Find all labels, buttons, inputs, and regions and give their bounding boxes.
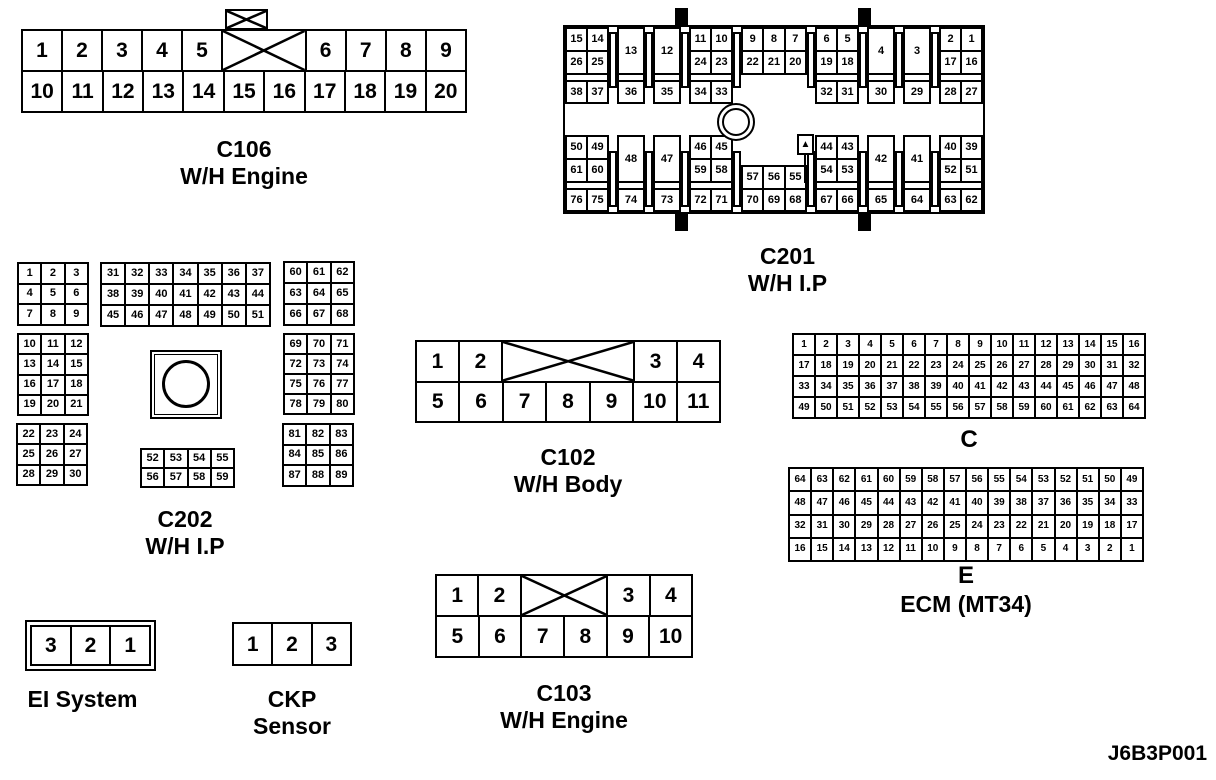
pin-cell: 86 xyxy=(331,446,352,465)
ecm-c-label: C xyxy=(792,426,1146,453)
figure-code: J6B3P001 xyxy=(1000,742,1207,766)
pin-cell: 84 xyxy=(284,446,305,465)
c106-title: C106 xyxy=(21,136,467,163)
c201-index-marker-stem xyxy=(804,155,806,183)
pin-cell: 61 xyxy=(308,263,329,282)
c202-grid-7: 5253545556575859 xyxy=(140,448,235,488)
pin-cell: 22 xyxy=(18,425,39,443)
pin-cell: 7 xyxy=(347,31,385,70)
c106-row1-right-cells: 6789 xyxy=(307,31,465,70)
pin-cell: 28 xyxy=(1036,356,1056,375)
c106-row1-left-cells: 12345 xyxy=(23,31,221,70)
c201-pod: 65 1918 3231 xyxy=(815,27,859,104)
pin-cell: 7 xyxy=(786,29,805,50)
pin-cell: 15 xyxy=(812,539,832,560)
pin-cell: 59 xyxy=(212,469,233,486)
c201-bolt-hole-inner-icon xyxy=(722,108,750,136)
pin-cell: 56 xyxy=(967,469,987,490)
pod-row: 65 xyxy=(817,29,857,50)
pin-cell: 11 xyxy=(678,383,719,422)
pin-cell: 50 xyxy=(567,137,586,158)
pin-cell: 22 xyxy=(743,52,762,73)
pin-cell: 67 xyxy=(308,305,329,324)
pin-cell: 40 xyxy=(948,377,968,396)
pin-cell: 56 xyxy=(948,398,968,417)
pin-cell: 72 xyxy=(691,190,710,210)
pin-cell: 10 xyxy=(992,335,1012,354)
pod-gap xyxy=(817,75,857,80)
ckp-sensor-subtitle: Sensor xyxy=(232,713,352,740)
pin-cell: 13 xyxy=(144,72,182,111)
pin-cell: 12 xyxy=(655,29,679,73)
pin-cell: 41 xyxy=(905,137,929,181)
pin-cell: 51 xyxy=(962,160,981,181)
pin-cell: 53 xyxy=(882,398,902,417)
c102-row2-cells: 567891011 xyxy=(417,383,719,422)
pin-cell: 3 xyxy=(1078,539,1098,560)
pin-cell: 31 xyxy=(812,516,832,537)
pin-cell: 57 xyxy=(165,469,186,486)
pin-cell: 53 xyxy=(165,450,186,467)
pin-cell: 8 xyxy=(565,617,606,656)
pin-cell: 28 xyxy=(879,516,899,537)
ei-system-label: EI System xyxy=(0,686,165,713)
ecm-connector-c-grid: 1234567891011121314151617181920212223242… xyxy=(792,333,1146,419)
pin-cell: 37 xyxy=(247,264,269,283)
c102-title: C102 xyxy=(415,444,721,471)
pin-cell: 17 xyxy=(941,52,960,73)
pin-cell: 42 xyxy=(199,285,221,304)
pin-cell: 39 xyxy=(126,285,148,304)
pin-cell: 26 xyxy=(992,356,1012,375)
pin-cell: 59 xyxy=(901,469,921,490)
pin-cell: 60 xyxy=(588,160,607,181)
ei-system-title: EI System xyxy=(0,686,165,713)
pin-cell: 45 xyxy=(1058,377,1078,396)
pin-cell: 67 xyxy=(817,190,836,210)
pin-cell: 8 xyxy=(387,31,425,70)
pin-cell: 55 xyxy=(786,167,805,188)
pin-cell: 37 xyxy=(588,82,607,102)
c202-grid-3: 606162636465666768 xyxy=(283,261,355,326)
pin-cell: 36 xyxy=(619,82,643,102)
pod-row: 3433 xyxy=(691,82,731,102)
pin-cell: 36 xyxy=(1056,492,1076,513)
pin-cell: 44 xyxy=(247,285,269,304)
c106-row1: 12345 6789 xyxy=(23,31,465,70)
c201-rib xyxy=(859,32,867,88)
pin-cell: 2 xyxy=(273,624,310,664)
c202-title: C202 xyxy=(100,506,270,533)
pin-cell: 46 xyxy=(834,492,854,513)
pin-cell: 47 xyxy=(150,306,172,325)
c201-pod: 575655 706968 xyxy=(741,165,807,212)
pod-gap xyxy=(905,75,929,80)
pin-cell: 16 xyxy=(1124,335,1144,354)
c202-label: C202 W/H I.P xyxy=(100,506,270,560)
pin-cell: 12 xyxy=(879,539,899,560)
pin-cell: 9 xyxy=(608,617,649,656)
c201-pod: 12 35 xyxy=(653,27,681,104)
pin-cell: 40 xyxy=(941,137,960,158)
c201-rib xyxy=(895,32,903,88)
pod-gap xyxy=(691,183,731,188)
c201-rib xyxy=(609,32,617,88)
pin-cell: 8 xyxy=(967,539,987,560)
pin-cell: 10 xyxy=(712,29,731,50)
pin-cell: 57 xyxy=(743,167,762,188)
pin-cell: 43 xyxy=(901,492,921,513)
pin-cell: 14 xyxy=(184,72,222,111)
pin-cell: 61 xyxy=(567,160,586,181)
pod-row: 3231 xyxy=(817,82,857,102)
pin-cell: 21 xyxy=(882,356,902,375)
pin-cell: 49 xyxy=(794,398,814,417)
pin-cell: 28 xyxy=(941,82,960,102)
pin-cell: 54 xyxy=(1011,469,1031,490)
ecm-title: ECM (MT34) xyxy=(788,591,1144,618)
pin-cell: 83 xyxy=(331,425,352,444)
pin-cell: 23 xyxy=(712,52,731,73)
pin-cell: 20 xyxy=(42,396,63,414)
pin-cell: 70 xyxy=(743,190,762,210)
pin-cell: 6 xyxy=(307,31,345,70)
pin-cell: 75 xyxy=(588,190,607,210)
pin-cell: 60 xyxy=(879,469,899,490)
c202-grid-6: 222324252627282930 xyxy=(16,423,88,486)
pin-cell: 19 xyxy=(817,52,836,73)
pin-cell: 46 xyxy=(1080,377,1100,396)
pod-row: 575655 xyxy=(743,167,805,188)
pin-cell: 29 xyxy=(41,466,62,484)
pin-cell: 41 xyxy=(970,377,990,396)
pin-cell: 19 xyxy=(386,72,424,111)
pin-cell: 66 xyxy=(285,305,306,324)
pod-row: 5049 xyxy=(567,137,607,158)
pin-cell: 39 xyxy=(989,492,1009,513)
pin-cell: 52 xyxy=(941,160,960,181)
pin-cell: 69 xyxy=(285,335,306,353)
pin-cell: 15 xyxy=(1102,335,1122,354)
pin-cell: 7 xyxy=(504,383,545,422)
pod-row: 222120 xyxy=(743,52,805,73)
pod-gap xyxy=(619,183,643,188)
pin-cell: 16 xyxy=(19,376,40,394)
pin-cell: 22 xyxy=(1011,516,1031,537)
c201-pod: 41 64 xyxy=(903,135,931,212)
pin-cell: 49 xyxy=(588,137,607,158)
pin-cell: 1 xyxy=(111,627,149,664)
pin-cell: 75 xyxy=(285,375,306,393)
pin-cell: 5 xyxy=(882,335,902,354)
pin-cell: 4 xyxy=(651,576,691,615)
c201-rib xyxy=(931,151,939,207)
c103-row1-right-cells: 34 xyxy=(608,576,691,615)
c201-title: C201 xyxy=(565,243,1010,270)
pin-cell: 33 xyxy=(150,264,172,283)
pod-row: 6160 xyxy=(567,160,607,181)
pin-cell: 53 xyxy=(838,160,857,181)
pin-cell: 49 xyxy=(1122,469,1142,490)
pin-cell: 40 xyxy=(967,492,987,513)
pin-cell: 58 xyxy=(923,469,943,490)
pin-cell: 31 xyxy=(102,264,124,283)
c103-subtitle: W/H Engine xyxy=(435,707,693,734)
pin-cell: 16 xyxy=(265,72,303,111)
c102-row1-right-cells: 34 xyxy=(635,342,719,381)
pin-cell: 10 xyxy=(634,383,675,422)
pin-cell: 2 xyxy=(42,264,63,283)
pin-cell: 44 xyxy=(1036,377,1056,396)
pin-cell: 21 xyxy=(66,396,87,414)
pin-cell: 15 xyxy=(225,72,263,111)
pin-cell: 49 xyxy=(199,306,221,325)
pin-cell: 27 xyxy=(65,445,86,463)
pin-cell: 45 xyxy=(102,306,124,325)
pin-cell: 27 xyxy=(962,82,981,102)
c201-rib xyxy=(807,151,815,207)
pin-cell: 15 xyxy=(567,29,586,50)
pin-cell: 61 xyxy=(856,469,876,490)
pin-cell: 20 xyxy=(860,356,880,375)
c106-row2-cells: 1011121314151617181920 xyxy=(23,72,465,111)
pin-cell: 1 xyxy=(417,342,458,381)
pin-cell: 14 xyxy=(834,539,854,560)
pin-cell: 63 xyxy=(1102,398,1122,417)
pin-cell: 74 xyxy=(332,355,353,373)
pin-cell: 4 xyxy=(1056,539,1076,560)
pin-cell: 46 xyxy=(691,137,710,158)
pod-row: 5251 xyxy=(941,160,981,181)
pin-cell: 25 xyxy=(970,356,990,375)
pin-cell: 29 xyxy=(905,82,929,102)
pin-cell: 13 xyxy=(856,539,876,560)
pin-cell: 6 xyxy=(1011,539,1031,560)
pin-cell: 47 xyxy=(655,137,679,181)
c202-grid-1: 123456789 xyxy=(17,262,89,326)
pin-cell: 1 xyxy=(234,624,271,664)
pod-gap xyxy=(817,183,857,188)
pin-cell: 23 xyxy=(926,356,946,375)
pin-cell: 45 xyxy=(712,137,731,158)
pin-cell: 18 xyxy=(816,356,836,375)
pin-cell: 36 xyxy=(860,377,880,396)
pod-row: 706968 xyxy=(743,190,805,210)
pin-cell: 34 xyxy=(174,264,196,283)
c201-rib xyxy=(733,151,741,207)
pin-cell: 30 xyxy=(1080,356,1100,375)
pin-cell: 43 xyxy=(1014,377,1034,396)
pod-row: 5453 xyxy=(817,160,857,181)
pin-cell: 42 xyxy=(869,137,893,181)
pin-cell: 42 xyxy=(923,492,943,513)
pin-cell: 27 xyxy=(1014,356,1034,375)
pin-cell: 59 xyxy=(1014,398,1034,417)
pin-cell: 62 xyxy=(332,263,353,282)
pin-cell: 4 xyxy=(860,335,880,354)
pin-cell: 55 xyxy=(926,398,946,417)
pin-cell: 76 xyxy=(308,375,329,393)
pin-cell: 71 xyxy=(332,335,353,353)
pin-cell: 7 xyxy=(989,539,1009,560)
pin-cell: 6 xyxy=(460,383,501,422)
pin-cell: 13 xyxy=(19,355,40,373)
pin-cell: 55 xyxy=(212,450,233,467)
c102-blanked-region-cross-icon xyxy=(503,342,633,381)
pin-cell: 2 xyxy=(72,627,110,664)
c201-pod: 48 74 xyxy=(617,135,645,212)
pin-cell: 50 xyxy=(816,398,836,417)
pin-cell: 16 xyxy=(790,539,810,560)
pin-cell: 32 xyxy=(790,516,810,537)
c103-label: C103 W/H Engine xyxy=(435,680,693,734)
pin-cell: 35 xyxy=(199,264,221,283)
pin-cell: 4 xyxy=(143,31,181,70)
pin-cell: 88 xyxy=(307,466,328,485)
c103-blanked-region-cross-icon xyxy=(522,576,607,615)
pin-cell: 19 xyxy=(1078,516,1098,537)
c202-subtitle: W/H I.P xyxy=(100,533,270,560)
c201-mount-tab-icon xyxy=(858,8,871,25)
c202-grid-5: 697071727374757677787980 xyxy=(283,333,355,415)
c201-pod: 42 65 xyxy=(867,135,895,212)
c103-row2-cells: 5678910 xyxy=(437,617,691,656)
c202-bolt-boss xyxy=(150,350,222,419)
pin-cell: 73 xyxy=(655,190,679,210)
c201-rib xyxy=(681,32,689,88)
pin-cell: 23 xyxy=(41,425,62,443)
pod-gap xyxy=(655,183,679,188)
pod-row: 987 xyxy=(743,29,805,50)
pod-row: 1514 xyxy=(567,29,607,50)
c106-blanked-region-cross-icon xyxy=(223,31,305,70)
c201-pod: 1514 2625 3837 xyxy=(565,27,609,104)
c106-keying-tab-icon xyxy=(225,9,268,30)
pin-cell: 18 xyxy=(1100,516,1120,537)
pin-cell: 74 xyxy=(619,190,643,210)
pin-cell: 2 xyxy=(941,29,960,50)
ecm-e-label: E xyxy=(788,562,1144,589)
pin-cell: 51 xyxy=(1078,469,1098,490)
pin-cell: 24 xyxy=(948,356,968,375)
pin-cell: 17 xyxy=(42,376,63,394)
pin-cell: 20 xyxy=(786,52,805,73)
pin-cell: 11 xyxy=(42,335,63,353)
pin-cell: 2 xyxy=(816,335,836,354)
pin-cell: 47 xyxy=(812,492,832,513)
pin-cell: 7 xyxy=(522,617,563,656)
pin-cell: 21 xyxy=(1033,516,1053,537)
pin-cell: 52 xyxy=(142,450,163,467)
pod-gap xyxy=(941,183,981,188)
pin-cell: 9 xyxy=(591,383,632,422)
pin-cell: 62 xyxy=(962,190,981,210)
pin-cell: 11 xyxy=(1014,335,1034,354)
pin-cell: 65 xyxy=(332,284,353,303)
pin-cell: 9 xyxy=(743,29,762,50)
pin-cell: 14 xyxy=(42,355,63,373)
pin-cell: 36 xyxy=(223,264,245,283)
ckp-sensor-label: CKP Sensor xyxy=(232,686,352,740)
ecm-connector-e-grid: 6463626160595857565554535251504948474645… xyxy=(788,467,1144,562)
pin-cell: 39 xyxy=(962,137,981,158)
pin-cell: 4 xyxy=(678,342,719,381)
pin-cell: 26 xyxy=(41,445,62,463)
pod-row: 2827 xyxy=(941,82,981,102)
connector-pinout-diagram: 12345 6789 1011121314151617181920 C106 W… xyxy=(0,0,1216,780)
pin-cell: 19 xyxy=(19,396,40,414)
pod-row: 21 xyxy=(941,29,981,50)
pod-gap xyxy=(691,75,731,80)
pin-cell: 10 xyxy=(19,335,40,353)
c201-mount-tab-icon xyxy=(675,214,688,231)
pin-cell: 15 xyxy=(66,355,87,373)
pin-cell: 3 xyxy=(313,624,350,664)
pin-cell: 34 xyxy=(691,82,710,102)
pin-cell: 59 xyxy=(691,160,710,181)
pin-cell: 3 xyxy=(635,342,676,381)
c202-grid-8: 818283848586878889 xyxy=(282,423,354,487)
pin-cell: 24 xyxy=(967,516,987,537)
pin-cell: 19 xyxy=(838,356,858,375)
pin-cell: 89 xyxy=(331,466,352,485)
pin-cell: 13 xyxy=(1058,335,1078,354)
c201-mount-tab-icon xyxy=(858,214,871,231)
pin-cell: 52 xyxy=(860,398,880,417)
pin-cell: 48 xyxy=(619,137,643,181)
pod-gap xyxy=(869,183,893,188)
pin-cell: 79 xyxy=(308,395,329,413)
pod-row: 2423 xyxy=(691,52,731,73)
pin-cell: 17 xyxy=(1122,516,1142,537)
pin-cell: 82 xyxy=(307,425,328,444)
pin-cell: 55 xyxy=(989,469,1009,490)
pin-cell: 51 xyxy=(247,306,269,325)
pin-cell: 9 xyxy=(945,539,965,560)
pin-cell: 11 xyxy=(691,29,710,50)
c201-rib xyxy=(681,151,689,207)
ei-system-cells: 321 xyxy=(30,625,151,666)
pin-cell: 4 xyxy=(19,285,40,304)
pin-cell: 30 xyxy=(65,466,86,484)
pin-cell: 3 xyxy=(905,29,929,73)
c106-subtitle: W/H Engine xyxy=(21,163,467,190)
pin-cell: 81 xyxy=(284,425,305,444)
pin-cell: 87 xyxy=(284,466,305,485)
pin-cell: 68 xyxy=(332,305,353,324)
pin-cell: 66 xyxy=(838,190,857,210)
c102-label: C102 W/H Body xyxy=(415,444,721,498)
pin-cell: 10 xyxy=(923,539,943,560)
ecm-e-title: E xyxy=(788,562,1144,589)
c201-pod: 4645 5958 7271 xyxy=(689,135,733,212)
pin-cell: 47 xyxy=(1102,377,1122,396)
pin-cell: 8 xyxy=(764,29,783,50)
pin-cell: 13 xyxy=(619,29,643,73)
pin-cell: 58 xyxy=(992,398,1012,417)
pin-cell: 10 xyxy=(23,72,61,111)
c201-pod: 3 29 xyxy=(903,27,931,104)
pin-cell: 38 xyxy=(567,82,586,102)
ei-system-connector: 321 xyxy=(25,620,156,671)
pin-cell: 63 xyxy=(941,190,960,210)
pin-cell: 5 xyxy=(183,31,221,70)
pod-row: 3837 xyxy=(567,82,607,102)
pin-cell: 33 xyxy=(1122,492,1142,513)
pin-cell: 3 xyxy=(608,576,648,615)
pin-cell: 33 xyxy=(794,377,814,396)
pin-cell: 27 xyxy=(901,516,921,537)
